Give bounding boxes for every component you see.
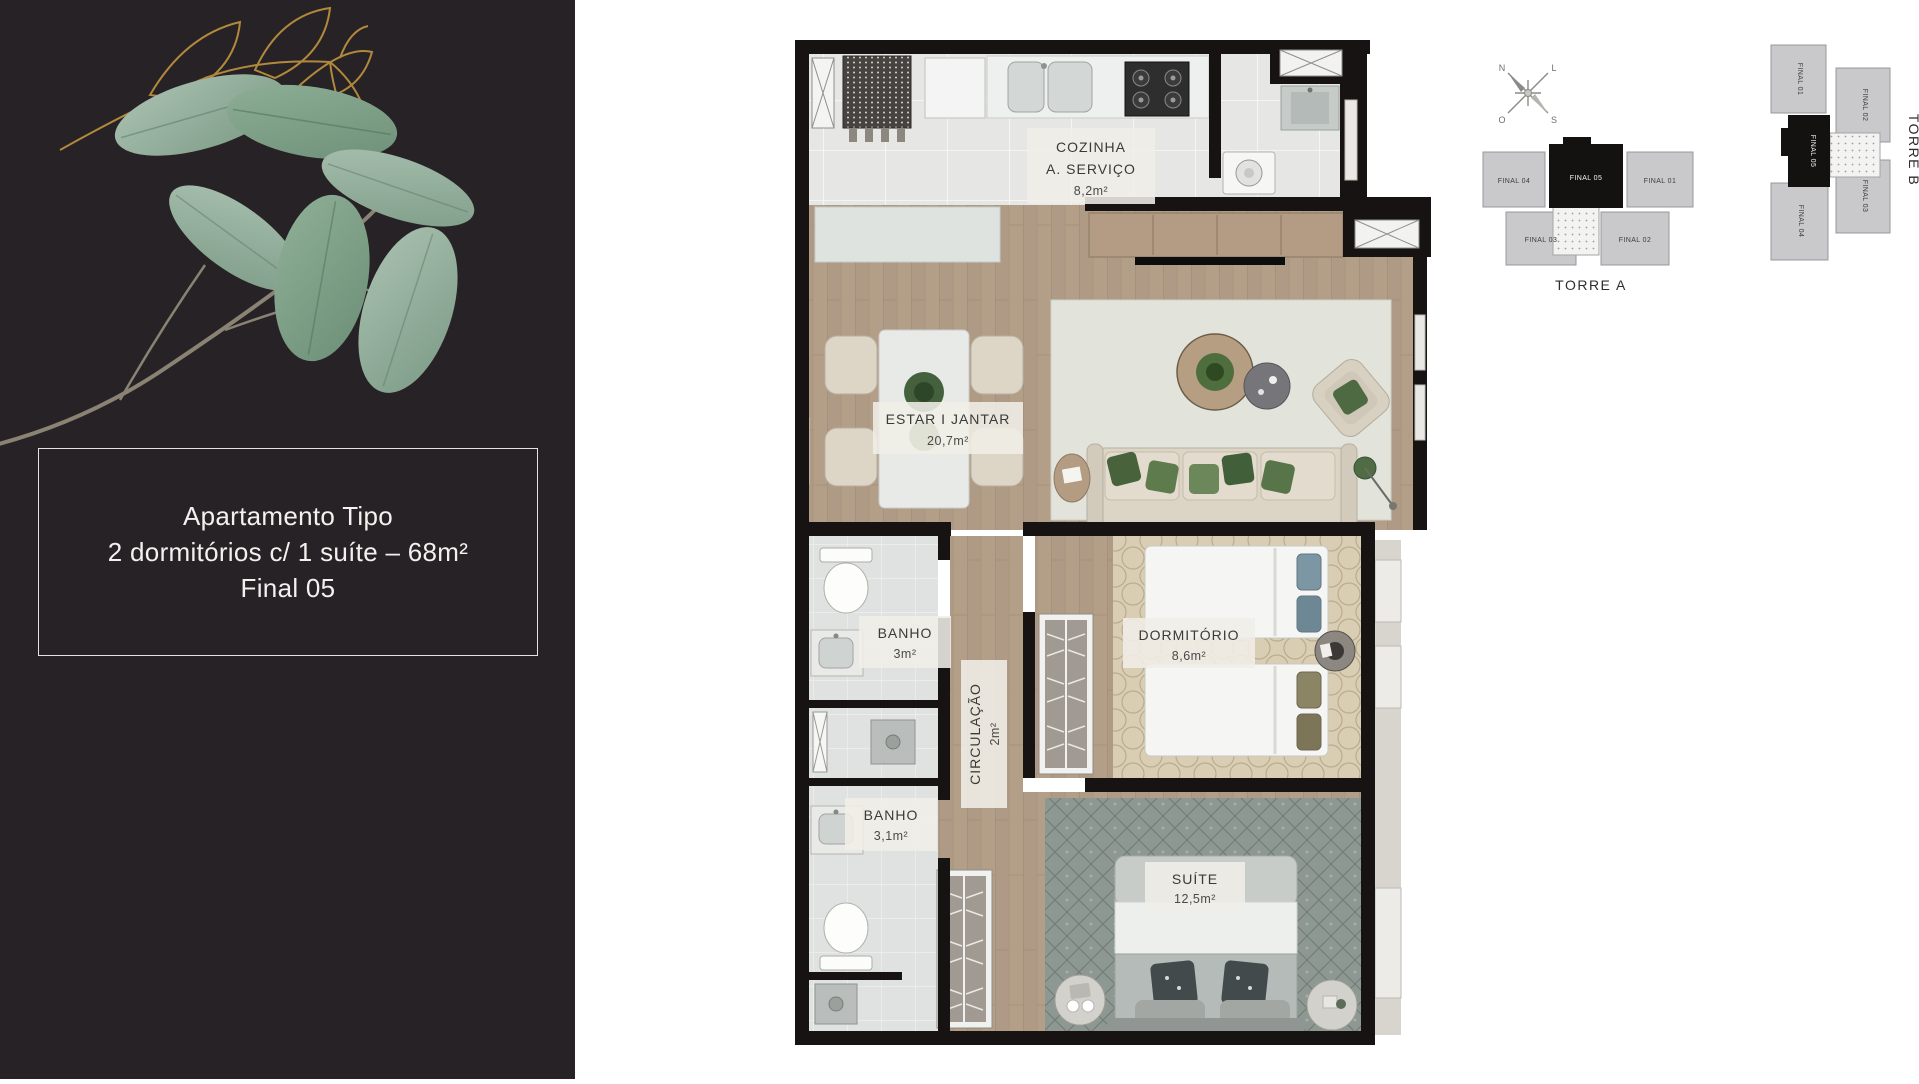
main-area: COZINHA A. SERVIÇO 8,2m² ESTAR I JANTAR … (575, 0, 1919, 1079)
banho1-area: 3m² (893, 647, 916, 661)
dormitorio-area: 8,6m² (1172, 649, 1206, 663)
toilet-icon (820, 903, 872, 970)
tv-console (1089, 213, 1343, 257)
eucalyptus-branch-illustration (0, 0, 575, 520)
single-bed-2 (1145, 664, 1328, 756)
apartment-unit-line: Final 05 (241, 570, 336, 606)
living-window (1415, 315, 1425, 370)
apartment-spec-line: 2 dormitórios c/ 1 suíte – 68m² (108, 534, 468, 570)
suite-window (1375, 888, 1401, 998)
dormitorio-name: DORMITÓRIO (1139, 627, 1240, 643)
keyplan-torre-b: FINAL 01 FINAL 02 FINAL 05 FINAL 03 FINA… (1771, 45, 1919, 260)
vent-grill (843, 56, 911, 128)
living-window-2 (1415, 385, 1425, 440)
compass-s: S (1551, 115, 1557, 125)
suite-nightstand-left (1055, 975, 1105, 1025)
banho1-label: BANHO 3m² (859, 616, 951, 668)
banho1-name: BANHO (878, 625, 933, 641)
apartment-type-line: Apartamento Tipo (183, 498, 393, 534)
laundry-sink-icon (1281, 86, 1339, 130)
circulacao-area: 2m² (988, 722, 1002, 745)
torre-a-final-02-label: FINAL 02 (1619, 237, 1652, 244)
sidebar: Apartamento Tipo 2 dormitórios c/ 1 suít… (0, 0, 575, 1079)
sink-vanity-icon (811, 630, 863, 676)
torre-b-final-04-label: FINAL 04 (1797, 205, 1804, 238)
torre-a-final-01-label: FINAL 01 (1644, 178, 1677, 185)
pillow (1297, 554, 1321, 590)
torre-b-final-02-label: FINAL 02 (1861, 89, 1868, 122)
dining-chair (825, 428, 877, 486)
dormitorio-label: DORMITÓRIO 8,6m² (1123, 618, 1255, 668)
compass-rose-icon: N L S O (1498, 63, 1557, 125)
compass-o: O (1498, 115, 1505, 125)
compass-l: L (1551, 63, 1556, 73)
torre-b-final-05-label: FINAL 05 (1809, 135, 1816, 168)
torre-b-final-01-label: FINAL 01 (1796, 63, 1803, 96)
suite-name: SUÍTE (1172, 871, 1218, 887)
dorm-nightstand (1315, 631, 1355, 671)
banho2-label: BANHO 3,1m² (845, 798, 937, 850)
floor-plan: COZINHA A. SERVIÇO 8,2m² ESTAR I JANTAR … (795, 40, 1431, 1045)
apartment-title-box: Apartamento Tipo 2 dormitórios c/ 1 suít… (38, 448, 538, 656)
service-window (1345, 100, 1357, 180)
banho2-area: 3,1m² (874, 829, 908, 843)
banho2-name: BANHO (864, 807, 919, 823)
suite-nightstand-right (1307, 980, 1357, 1030)
keyplan-torre-a: FINAL 04 FINAL 05 FINAL 01 FINAL 03 FINA… (1483, 137, 1693, 293)
circulacao-label: CIRCULAÇÃO 2m² (961, 660, 1007, 808)
torre-a-final-04-label: FINAL 04 (1498, 178, 1531, 185)
cozinha-area: 8,2m² (1074, 184, 1108, 198)
torre-a-final-03-label: FINAL 03 (1525, 237, 1558, 244)
washing-machine-icon (1223, 152, 1275, 194)
page: { "sidebar": { "card": { "line1": "Apart… (0, 0, 1919, 1079)
exterior-wall-band (1375, 540, 1401, 1035)
suite-label: SUÍTE 12,5m² (1145, 862, 1245, 910)
fridge (925, 58, 985, 118)
tv-icon (1135, 257, 1285, 265)
pillow (1297, 672, 1321, 708)
dorm-window (1375, 560, 1401, 622)
dorm-wardrobe (1039, 614, 1093, 774)
pillow (1297, 714, 1321, 750)
estar-name: ESTAR I JANTAR (886, 411, 1011, 427)
sink-bowl (1008, 62, 1044, 112)
watercolor-leaves (106, 58, 483, 405)
estar-area: 20,7m² (927, 434, 969, 448)
floor-plan-figure: COZINHA A. SERVIÇO 8,2m² ESTAR I JANTAR … (575, 0, 1919, 1079)
compass-n: N (1499, 63, 1506, 73)
torre-b-final-03-label: FINAL 03 (1861, 180, 1868, 213)
kitchen-peninsula (815, 207, 1000, 262)
estar-label: ESTAR I JANTAR 20,7m² (873, 402, 1023, 454)
torre-a-title: TORRE A (1555, 277, 1627, 293)
suite-area: 12,5m² (1174, 892, 1216, 906)
dining-chair (971, 336, 1023, 394)
sink-bowl-2 (1048, 62, 1092, 112)
side-coffee-table (1244, 363, 1290, 409)
pillow (1297, 596, 1321, 632)
side-table (1054, 454, 1090, 502)
dining-chair (825, 336, 877, 394)
cozinha-name2: A. SERVIÇO (1046, 161, 1136, 177)
cozinha-name: COZINHA (1056, 139, 1126, 155)
torre-a-core (1553, 207, 1599, 255)
sofa (1087, 444, 1357, 528)
torre-b-title: TORRE B (1906, 114, 1919, 186)
headboard (1107, 1018, 1305, 1033)
stove-icon (1125, 62, 1189, 116)
torre-b-final-05-unit-highlighted (1788, 115, 1830, 187)
cozinha-label: COZINHA A. SERVIÇO 8,2m² (1027, 128, 1155, 204)
circulacao-name: CIRCULAÇÃO (967, 683, 983, 785)
torre-b-core (1830, 133, 1880, 177)
torre-a-final-05-label: FINAL 05 (1570, 175, 1603, 182)
dorm-window-2 (1375, 646, 1401, 708)
